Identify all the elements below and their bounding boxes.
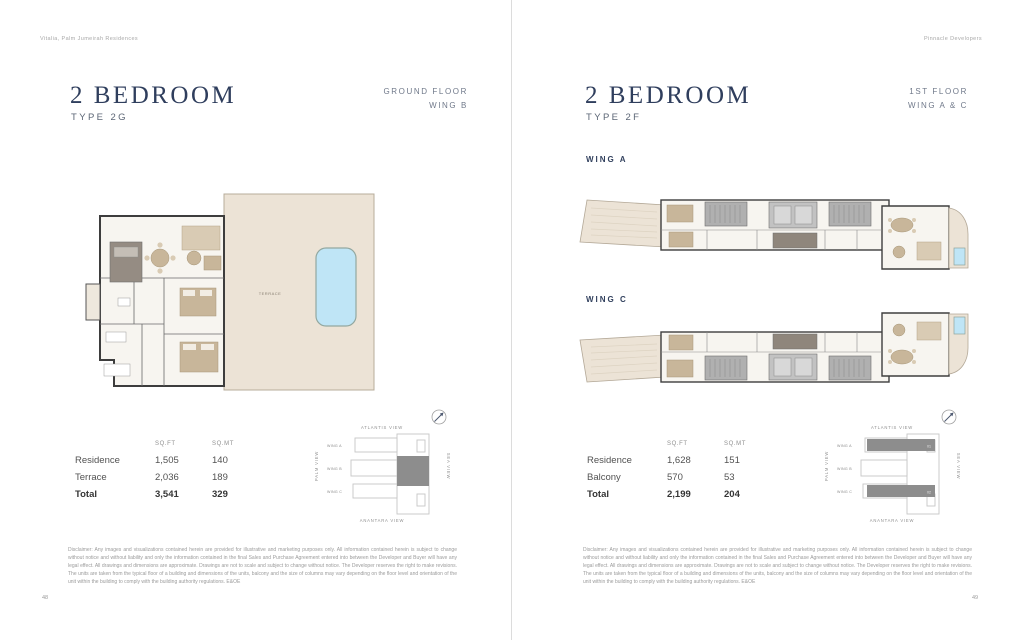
floorplan-type-2g: TERRACE [84,192,378,398]
floor-wing-block: 1ST FLOOR WING A & C [818,85,968,113]
unit-tag-02: 02 [927,491,931,495]
col-header-sqft: SQ.FT [667,441,724,452]
page-number: 49 [972,595,978,601]
row-sqft: 2,036 [155,469,212,486]
keyplan-wing-b: ATLANTIS VIEW ANANTARA VIEW PALM VIEW SE… [311,404,453,528]
floor-label: 1ST FLOOR [818,85,968,99]
table-row: Residence 1,505 140 [75,452,267,469]
balcony-area [580,200,665,247]
table-header-row: SQ.FT SQ.MT [75,441,267,452]
view-label-left: PALM VIEW [314,451,319,481]
unit-tag-01: 01 [927,445,931,449]
side-ledge [86,284,100,320]
row-sqft: 570 [667,469,724,486]
table-row-total: Total 3,541 329 [75,486,267,503]
area-table: SQ.FT SQ.MT Residence 1,628 151 Balcony … [587,441,779,503]
view-label-right: SEA VIEW [956,453,961,479]
wing-a-section-label: WING A [586,155,627,164]
wing-label: WING A & C [818,99,968,113]
pool-shape [954,248,965,265]
row-label: Balcony [587,469,667,486]
page-number: 48 [42,595,48,601]
view-label-bottom: ANANTARA VIEW [870,518,915,523]
floorplan-wing-c [577,306,975,410]
row-sqft: 3,541 [155,486,212,503]
table-row: Balcony 570 53 [587,469,779,486]
unit-type-label: TYPE 2F [586,112,641,123]
row-sqmt: 151 [724,452,779,469]
kitchen-block [110,242,142,282]
floorplan-wing-a [577,172,975,276]
floor-label: GROUND FLOOR [318,85,468,99]
unit-highlight-wing-c [867,485,935,497]
keyplan-wing-b-label: WING B [327,467,342,471]
keyplan-wing-c-label: WING C [327,490,342,494]
bedroom2-furniture [180,288,216,316]
disclaimer-text: Disclaimer: Any images and visualization… [583,546,972,586]
table-row: Terrace 2,036 189 [75,469,267,486]
disclaimer-text: Disclaimer: Any images and visualization… [68,546,457,586]
wing-label: WING B [318,99,468,113]
view-label-left: PALM VIEW [824,451,829,481]
keyplan-wing-a-label: WING A [837,444,852,448]
table-row-total: Total 2,199 204 [587,486,779,503]
row-sqft: 1,628 [667,452,724,469]
row-sqmt: 189 [212,469,267,486]
developer-header: Pinnacle Developers [832,36,982,42]
page-left: Vitalia, Palm Jumeirah Residences 2 BEDR… [0,0,511,640]
row-label: Residence [587,452,667,469]
page-right: Pinnacle Developers 2 BEDROOM TYPE 2F 1S… [512,0,1023,640]
col-header-sqmt: SQ.MT [724,441,779,452]
row-label: Total [75,486,155,503]
terrace-label: TERRACE [259,291,282,296]
view-label-right: SEA VIEW [446,453,451,479]
keyplan-wing-b-label: WING B [837,467,852,471]
view-label-top: ATLANTIS VIEW [361,425,403,430]
brand-header: Vitalia, Palm Jumeirah Residences [40,36,138,42]
row-sqft: 2,199 [667,486,724,503]
view-label-bottom: ANANTARA VIEW [360,518,405,523]
keyplan-wing-a-c: ATLANTIS VIEW ANANTARA VIEW PALM VIEW SE… [821,404,963,528]
table-row: Residence 1,628 151 [587,452,779,469]
wing-c-section-label: WING C [586,295,628,304]
row-label: Terrace [75,469,155,486]
master-bedroom-furniture [180,342,218,372]
row-label: Total [587,486,667,503]
north-arrow-icon [942,410,956,424]
area-table: SQ.FT SQ.MT Residence 1,505 140 Terrace … [75,441,267,503]
unit-highlight-wing-b [397,456,429,486]
unit-type-label: TYPE 2G [71,112,128,123]
brochure-spread: Vitalia, Palm Jumeirah Residences 2 BEDR… [0,0,1024,640]
row-sqft: 1,505 [155,452,212,469]
page-title: 2 BEDROOM [585,82,751,110]
row-sqmt: 53 [724,469,779,486]
col-header-sqft: SQ.FT [155,441,212,452]
col-header-sqmt: SQ.MT [212,441,267,452]
floor-wing-block: GROUND FLOOR WING B [318,85,468,113]
keyplan-wing-c-label: WING C [837,490,852,494]
north-arrow-icon [432,410,446,424]
row-sqmt: 329 [212,486,267,503]
table-header-row: SQ.FT SQ.MT [587,441,779,452]
page-title: 2 BEDROOM [70,82,236,110]
view-label-top: ATLANTIS VIEW [871,425,913,430]
pool-shape [316,248,356,326]
row-sqmt: 204 [724,486,779,503]
row-label: Residence [75,452,155,469]
row-sqmt: 140 [212,452,267,469]
unit-highlight-wing-a [867,439,935,451]
keyplan-wing-a-label: WING A [327,444,342,448]
